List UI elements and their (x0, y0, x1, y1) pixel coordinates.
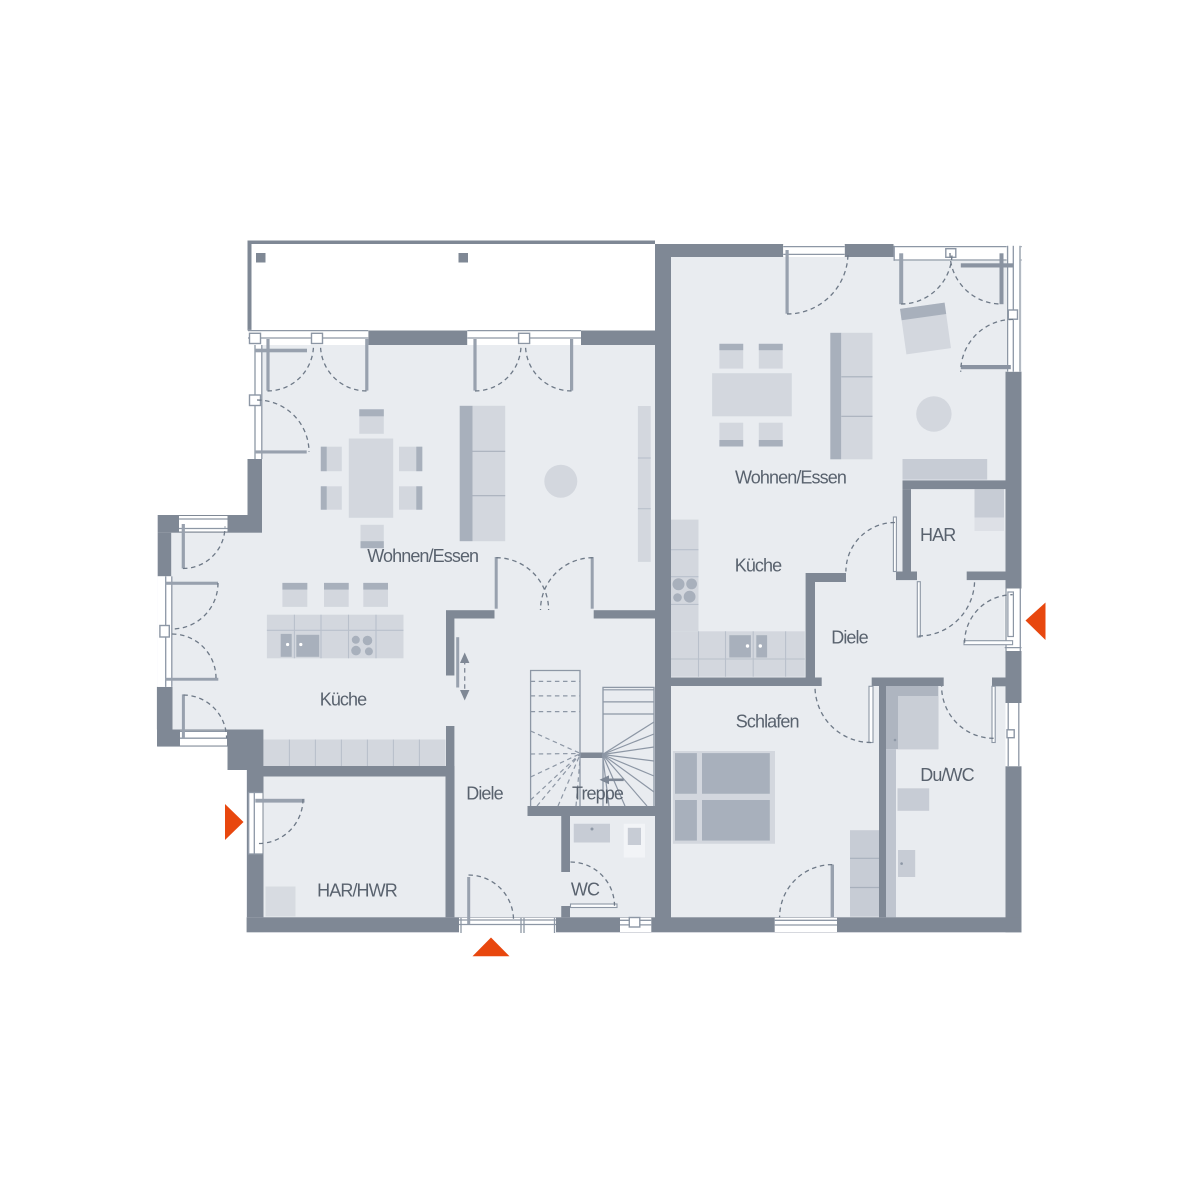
svg-text:Treppe: Treppe (572, 784, 624, 804)
svg-text:Diele: Diele (466, 784, 503, 804)
svg-text:Schlafen: Schlafen (736, 712, 799, 732)
svg-text:Küche: Küche (735, 556, 782, 576)
svg-text:Du/WC: Du/WC (920, 765, 974, 785)
svg-text:Wohnen/Essen: Wohnen/Essen (367, 546, 478, 566)
svg-text:HAR/HWR: HAR/HWR (317, 881, 398, 901)
svg-text:Diele: Diele (831, 628, 868, 648)
svg-text:Wohnen/Essen: Wohnen/Essen (735, 468, 846, 488)
svg-text:WC: WC (571, 880, 600, 900)
svg-text:Küche: Küche (320, 690, 367, 710)
svg-text:HAR: HAR (920, 525, 956, 545)
